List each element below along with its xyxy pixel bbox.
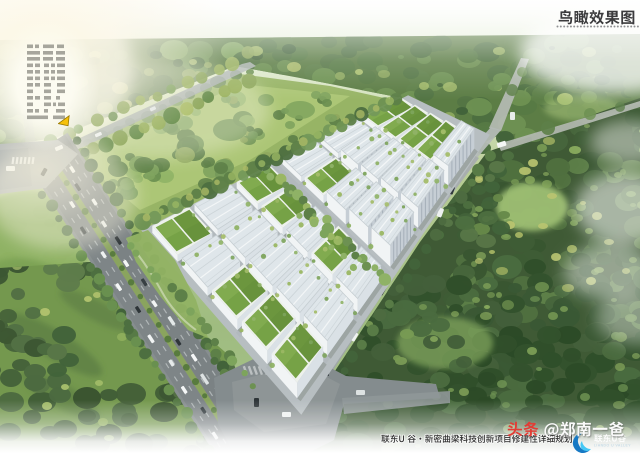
svg-text:LIANDO U VALLEY: LIANDO U VALLEY [594,444,631,448]
